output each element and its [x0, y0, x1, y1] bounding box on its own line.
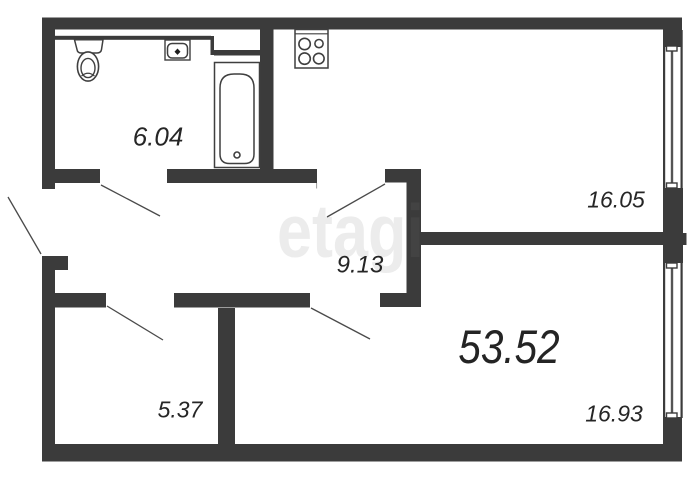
svg-text:16.93: 16.93	[585, 401, 643, 427]
svg-text:53.52: 53.52	[458, 321, 559, 374]
svg-text:6.04: 6.04	[133, 122, 184, 152]
svg-text:16.05: 16.05	[587, 187, 645, 213]
svg-text:5.37: 5.37	[158, 397, 204, 423]
svg-text:9.13: 9.13	[337, 252, 384, 279]
